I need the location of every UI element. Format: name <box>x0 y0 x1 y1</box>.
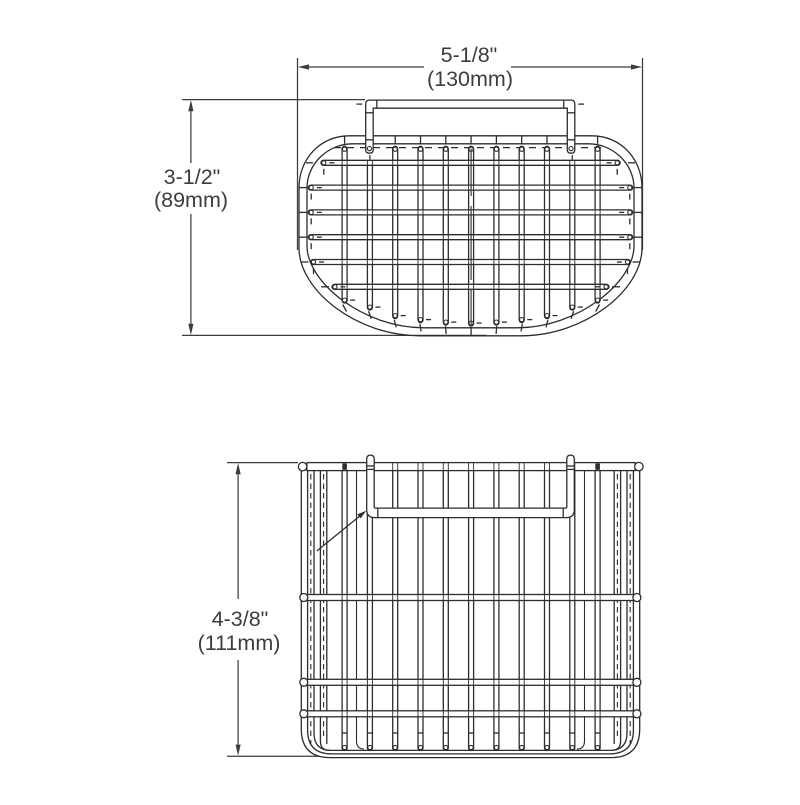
svg-text:(111mm): (111mm) <box>198 631 281 655</box>
svg-text:5-1/8": 5-1/8" <box>441 43 498 67</box>
svg-text:(130mm): (130mm) <box>427 67 513 91</box>
svg-text:(89mm): (89mm) <box>154 188 228 212</box>
svg-text:4-3/8": 4-3/8" <box>212 607 269 631</box>
svg-text:3-1/2": 3-1/2" <box>164 165 221 189</box>
